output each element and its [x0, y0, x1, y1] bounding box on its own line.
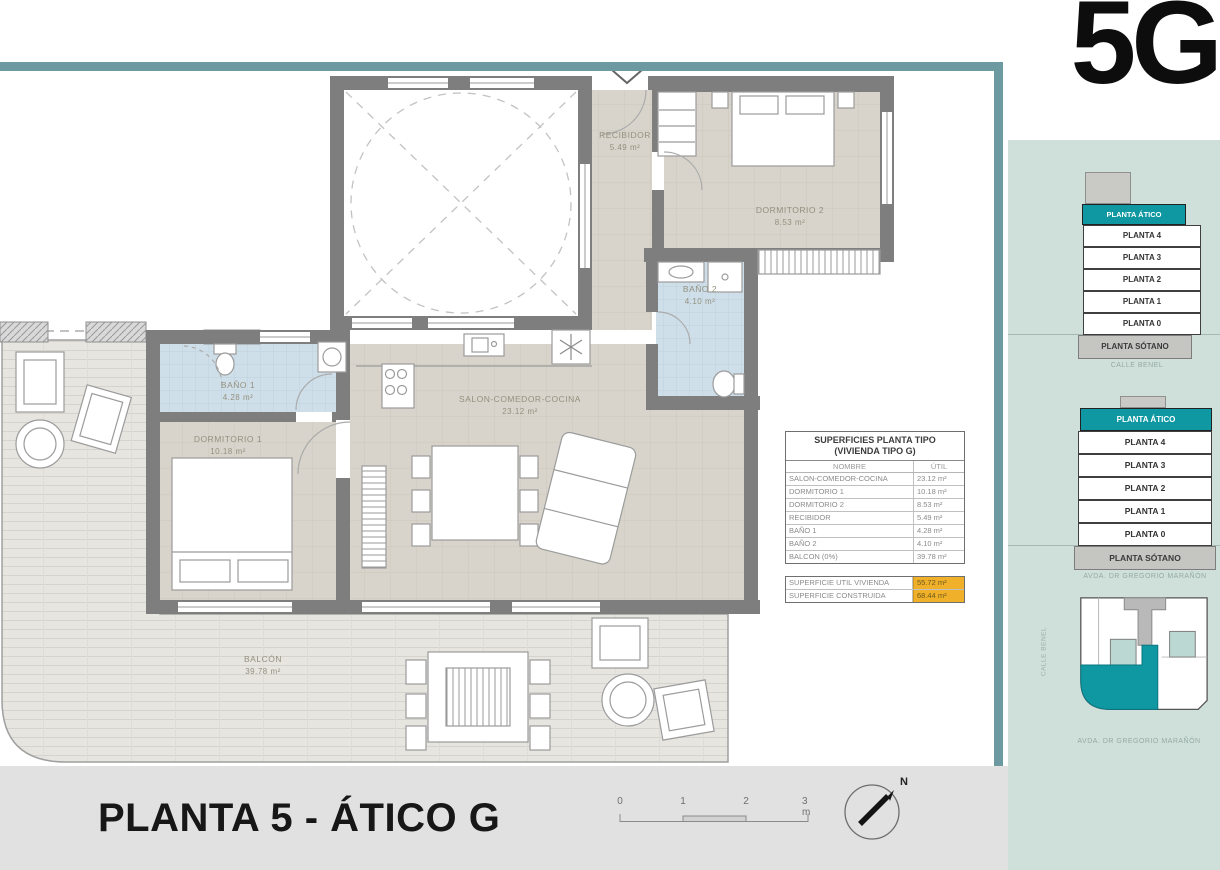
roof-box — [1085, 172, 1131, 204]
stack1-level-sotano: PLANTA SÓTANO — [1078, 335, 1192, 359]
sidebar: 5G PLANTA ÁTICO PLANTA 4 PLANTA 3 PLANTA… — [1008, 0, 1220, 870]
site-plan — [1066, 588, 1216, 736]
surface-table-summary: SUPERFICIE UTIL VIVIENDA 55.72 m² SUPERF… — [785, 576, 965, 603]
site-plan-side-street-label: CALLE BENEL — [1041, 612, 1048, 692]
stack2-level-4: PLANTA 4 — [1078, 431, 1212, 454]
room-label-bano1: BAÑO 1 4.28 m² — [193, 379, 283, 404]
surface-table-header: NOMBRE ÚTIL — [786, 461, 964, 473]
stack1-level-4: PLANTA 4 — [1083, 225, 1201, 247]
table-row: BAÑO 1 4.28 m² — [786, 525, 964, 538]
surface-table-main: SUPERFICIES PLANTA TIPO (VIVIENDA TIPO G… — [785, 431, 965, 564]
table-row: DORMITORIO 2 8.53 m² — [786, 499, 964, 512]
table-row: SALON-COMEDOR-COCINA 23.12 m² — [786, 473, 964, 486]
room-label-salon: SALON-COMEDOR-COCINA 23.12 m² — [440, 393, 600, 418]
room-label-recibidor: RECIBIDOR 5.49 m² — [580, 129, 670, 154]
stack2-level-0: PLANTA 0 — [1078, 523, 1212, 546]
stack1-level-1: PLANTA 1 — [1083, 291, 1201, 313]
entry-arrow-icon — [612, 70, 642, 83]
table-row: SUPERFICIE CONSTRUIDA 68.44 m² — [786, 590, 964, 602]
stack2-caption: AVDA. DR GREGORIO MARAÑÓN — [1074, 573, 1216, 580]
scale-bar-graphic — [618, 810, 814, 826]
stack1-level-atico: PLANTA ÁTICO — [1082, 204, 1186, 225]
stack2-level-1: PLANTA 1 — [1078, 500, 1212, 523]
stack2-level-atico: PLANTA ÁTICO — [1080, 408, 1212, 431]
table-row: SUPERFICIE UTIL VIVIENDA 55.72 m² — [786, 577, 964, 590]
site-plan-caption: AVDA. DR GREGORIO MARAÑÓN — [1064, 738, 1214, 745]
room-label-dormitorio1: DORMITORIO 1 10.18 m² — [168, 433, 288, 458]
stack1-level-0: PLANTA 0 — [1083, 313, 1201, 335]
table-row: BAÑO 2 4.10 m² — [786, 538, 964, 551]
roof-box — [1120, 396, 1166, 408]
stack2-level-3: PLANTA 3 — [1078, 454, 1212, 477]
table-row: BALCON (0%) 39.78 m² — [786, 551, 964, 563]
surface-table-title: SUPERFICIES PLANTA TIPO (VIVIENDA TIPO G… — [786, 432, 964, 461]
stack1-level-3: PLANTA 3 — [1083, 247, 1201, 269]
unit-code: 5G — [1071, 0, 1218, 102]
stack1-caption: CALLE BENEL — [1078, 362, 1196, 369]
plan-sheet: RECIBIDOR 5.49 m² DORMITORIO 2 8.53 m² B… — [0, 0, 1220, 870]
stack1-level-2: PLANTA 2 — [1083, 269, 1201, 291]
north-compass-icon: N — [838, 774, 910, 846]
stack2-level-sotano: PLANTA SÓTANO — [1074, 546, 1216, 570]
scale-bar: 0 1 2 3 m — [618, 796, 814, 832]
floor-plan-drawing — [0, 0, 1008, 766]
room-label-bano2: BAÑO 2 4.10 m² — [655, 283, 745, 308]
stack2-level-2: PLANTA 2 — [1078, 477, 1212, 500]
title-band: PLANTA 5 - ÁTICO G 0 1 2 3 m N — [0, 766, 1008, 870]
room-label-balcon: BALCÓN 39.78 m² — [218, 653, 308, 678]
table-row: DORMITORIO 1 10.18 m² — [786, 486, 964, 499]
surface-table: SUPERFICIES PLANTA TIPO (VIVIENDA TIPO G… — [785, 431, 965, 603]
table-row: RECIBIDOR 5.49 m² — [786, 512, 964, 525]
room-label-dormitorio2: DORMITORIO 2 8.53 m² — [730, 204, 850, 229]
sheet-title: PLANTA 5 - ÁTICO G — [98, 796, 500, 841]
